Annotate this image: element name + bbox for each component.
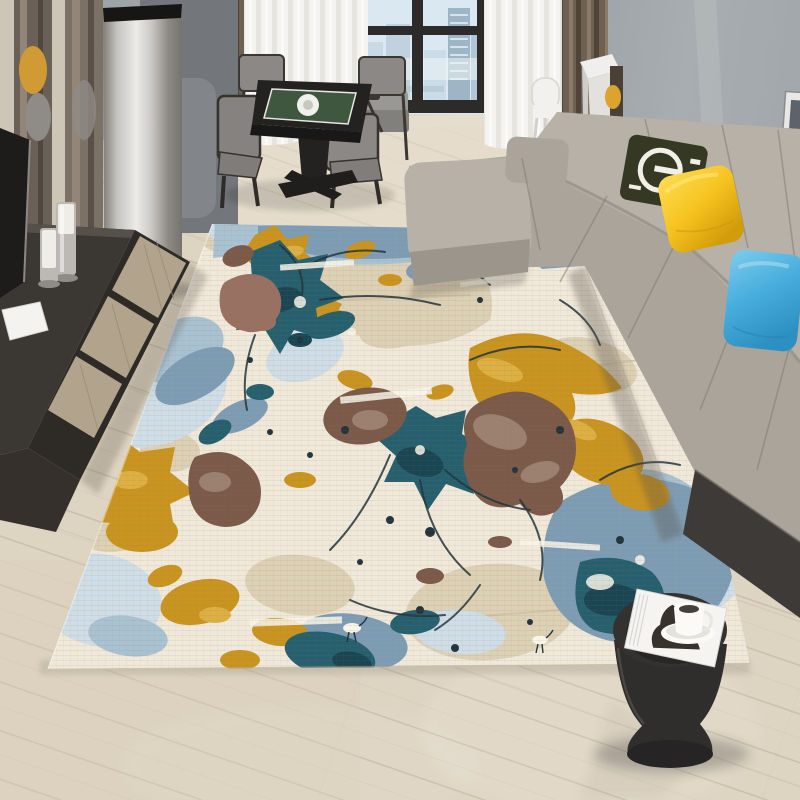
desk-chair-cushion [605, 85, 621, 109]
living-room-photo [0, 0, 800, 800]
mirror-reflection-gray [25, 93, 51, 141]
pillow-blue [722, 248, 800, 352]
sofa-armrest [504, 136, 569, 186]
pillow-yellow [656, 163, 747, 255]
mirror-reflection-yellow [19, 46, 47, 94]
